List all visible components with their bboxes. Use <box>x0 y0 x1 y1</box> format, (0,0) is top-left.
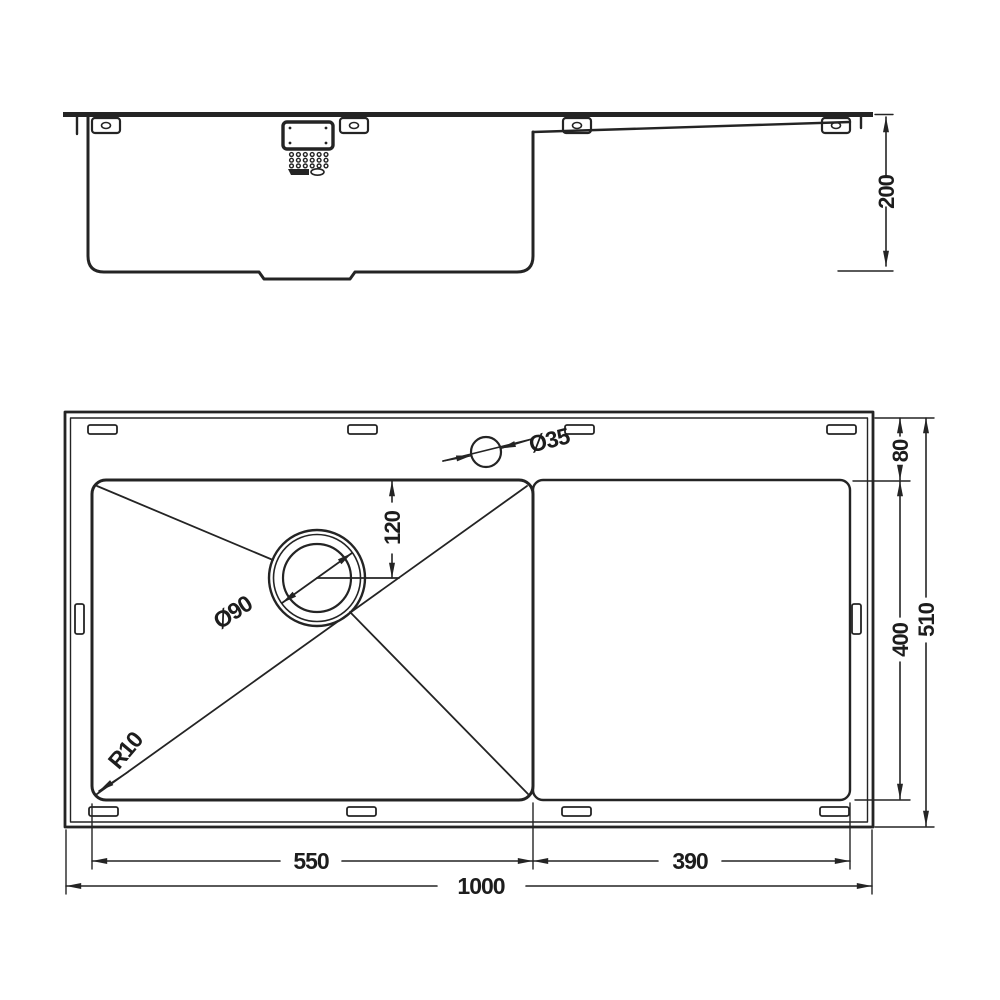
dimension-depth-200: 200 <box>838 115 899 272</box>
tab <box>820 807 849 816</box>
dim-label-120: 120 <box>380 510 405 544</box>
tab <box>827 425 856 434</box>
bowl-diagonals: Ø90 R10 <box>97 486 528 794</box>
dimension-drain-offset-120: 120 <box>317 481 405 578</box>
technical-drawing-page: 200 Ø35 <box>0 0 1000 1000</box>
dim-label-tap-hole: Ø35 <box>526 422 573 457</box>
bracket-foot <box>288 169 309 175</box>
bracket-screw <box>311 169 324 175</box>
dim-label-550: 550 <box>293 848 329 874</box>
dim-label-1000: 1000 <box>457 873 504 899</box>
worktop-line <box>63 112 873 117</box>
rim-tabs <box>75 425 861 816</box>
dim-label-corner-radius: R10 <box>103 727 148 774</box>
drainer <box>533 480 850 800</box>
clip-slot <box>350 123 359 129</box>
tab <box>852 604 861 634</box>
tab <box>89 807 118 816</box>
dimension-right-stack: 80 400 510 <box>853 418 939 827</box>
tab <box>347 807 376 816</box>
clip <box>822 118 850 133</box>
side-elevation-view: 200 <box>63 112 899 279</box>
mounting-bracket-detail <box>283 122 333 175</box>
rim-outer <box>65 412 873 827</box>
clip-slot <box>573 123 582 129</box>
dim-label-drain-diameter: Ø90 <box>208 590 256 634</box>
tab <box>88 425 117 434</box>
plan-view: Ø35 Ø90 R10 120 <box>65 412 939 899</box>
dim-label-200: 200 <box>874 174 899 208</box>
sink-technical-drawing: 200 Ø35 <box>0 0 1000 1000</box>
tab <box>562 807 591 816</box>
dim-label-400: 400 <box>888 622 913 656</box>
dim-label-510: 510 <box>914 602 939 636</box>
tap-hole-circle <box>471 437 501 467</box>
clip-slot <box>102 123 111 129</box>
tab <box>75 604 84 634</box>
bowl-profile <box>88 117 533 279</box>
dim-label-80: 80 <box>888 439 913 462</box>
clip <box>340 118 368 133</box>
clip <box>92 118 120 133</box>
dim-label-390: 390 <box>672 848 708 874</box>
tab <box>565 425 594 434</box>
tap-hole: Ø35 <box>443 422 573 467</box>
bracket-dot-grid <box>290 153 328 168</box>
bracket-plate <box>283 122 333 149</box>
tab <box>348 425 377 434</box>
dimension-bottom-stack: 550 390 1000 <box>66 803 872 899</box>
